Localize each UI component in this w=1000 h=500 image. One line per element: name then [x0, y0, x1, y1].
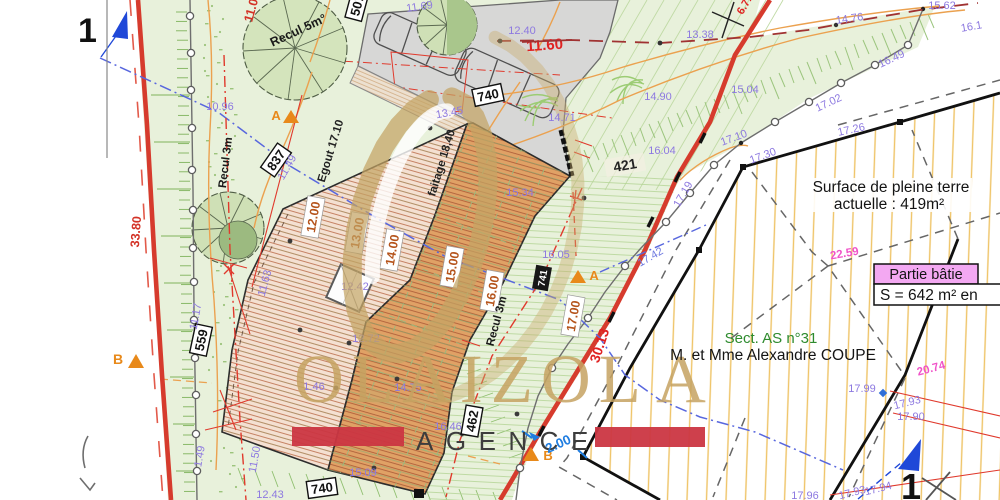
svg-text:M. et Mme Alexandre COUPE: M. et Mme Alexandre COUPE — [670, 347, 876, 364]
svg-text:15.09: 15.09 — [349, 467, 377, 479]
svg-text:15.62: 15.62 — [928, 0, 956, 12]
svg-text:16.05: 16.05 — [542, 249, 570, 261]
svg-text:15.04: 15.04 — [731, 84, 759, 96]
svg-text:Surface de pleine terre: Surface de pleine terre — [813, 179, 970, 196]
svg-text:13.38: 13.38 — [686, 29, 714, 41]
svg-text:740: 740 — [310, 479, 334, 497]
svg-text:actuelle : 419m²: actuelle : 419m² — [834, 196, 944, 213]
svg-text:10.96: 10.96 — [206, 101, 234, 113]
svg-text:17.96: 17.96 — [791, 490, 819, 500]
svg-text:A: A — [589, 268, 599, 283]
svg-text:12.43: 12.43 — [256, 489, 284, 500]
svg-text:AGENCE: AGENCE — [416, 426, 601, 456]
svg-text:A: A — [271, 108, 281, 123]
svg-text:17.90: 17.90 — [897, 411, 925, 423]
svg-text:14.71: 14.71 — [548, 112, 576, 124]
svg-text:11.60: 11.60 — [526, 36, 564, 56]
svg-text:S = 642 m² en: S = 642 m² en — [880, 287, 978, 304]
svg-text:17.99: 17.99 — [848, 383, 876, 395]
svg-text:33.80: 33.80 — [128, 216, 144, 248]
svg-text:15.34: 15.34 — [506, 187, 534, 199]
svg-text:Partie bâtie: Partie bâtie — [889, 267, 962, 283]
svg-text:1: 1 — [78, 12, 97, 50]
svg-text:12.40: 12.40 — [508, 25, 536, 37]
svg-text:14.90: 14.90 — [644, 91, 672, 103]
svg-text:B: B — [113, 351, 123, 367]
svg-text:16.04: 16.04 — [648, 145, 676, 157]
svg-text:Sect. AS n°31: Sect. AS n°31 — [725, 330, 818, 347]
svg-text:1: 1 — [901, 466, 921, 500]
